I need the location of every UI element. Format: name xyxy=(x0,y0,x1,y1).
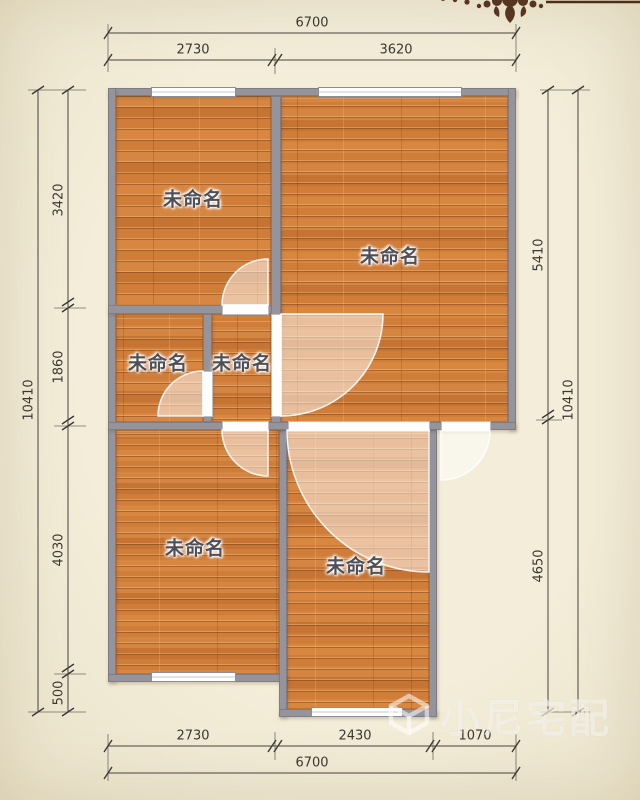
dim-bottom-overall: 6700 xyxy=(295,756,328,771)
dim-bottom-segment-2: 2430 xyxy=(338,729,371,744)
window-top-left-room xyxy=(151,87,236,97)
door-small-left-room xyxy=(202,371,213,417)
room-label: 未命名 xyxy=(165,534,225,561)
door-large-room xyxy=(271,314,282,417)
dim-right-segment-2: 4650 xyxy=(532,549,547,582)
door-entrance xyxy=(441,421,491,432)
dim-bottom-segment-1: 2730 xyxy=(176,729,209,744)
room-label: 未命名 xyxy=(326,552,386,579)
dim-left-overall: 10410 xyxy=(22,379,37,420)
dim-right-overall: 10410 xyxy=(562,379,577,420)
dim-left-segment-4: 500 xyxy=(52,681,67,706)
door-arc-entrance xyxy=(441,431,490,480)
wall-outer-left xyxy=(108,88,116,682)
door-top-left-room xyxy=(222,304,269,315)
room-label: 未命名 xyxy=(128,349,188,376)
corner-ornament-icon xyxy=(440,0,640,28)
dim-top-overall: 6700 xyxy=(295,16,328,31)
dim-left-segment-2: 1860 xyxy=(52,350,67,383)
window-large-room xyxy=(318,87,462,97)
wall-outer-right xyxy=(508,88,516,430)
dim-top-segment-2: 3620 xyxy=(379,43,412,58)
room-label: 未命名 xyxy=(163,185,223,212)
wall-bottom-middle-right xyxy=(429,430,437,717)
room-label: 未命名 xyxy=(360,242,420,269)
dim-left-segment-3: 4030 xyxy=(52,533,67,566)
dim-bottom-segment-3: 1070 xyxy=(458,729,491,744)
window-bottom-middle-room xyxy=(311,707,403,717)
door-bottom-left-room xyxy=(222,421,269,432)
wall-bottom-middle-left xyxy=(279,430,287,717)
window-bottom-left-room xyxy=(151,672,236,682)
dim-top-segment-1: 2730 xyxy=(176,43,209,58)
dim-left-segment-1: 3420 xyxy=(52,183,67,216)
opening-bottom-middle-room xyxy=(288,421,430,432)
dim-right-segment-1: 5410 xyxy=(532,238,547,271)
room-label: 未命名 xyxy=(212,349,272,376)
floor-plan-canvas: 6700 2730 3620 2730 2430 1070 6700 10410… xyxy=(0,0,640,800)
